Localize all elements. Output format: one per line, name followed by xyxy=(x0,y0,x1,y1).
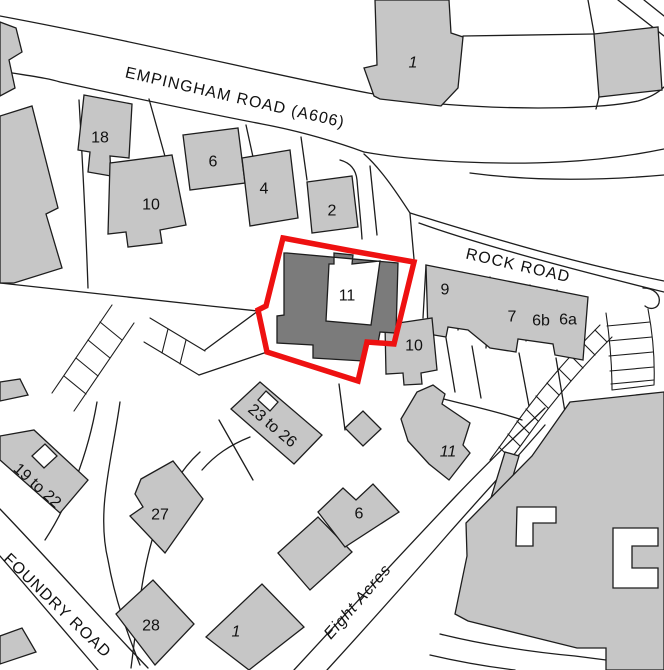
building-small-west xyxy=(0,379,28,401)
traffic-island-top xyxy=(364,149,664,163)
long-parcel-line-west xyxy=(0,283,258,311)
parcel-to-site-sw-b xyxy=(199,352,267,375)
label-building-1-north: 1 xyxy=(409,55,418,72)
parcel-18-6 xyxy=(149,99,166,160)
lane-south-of-site xyxy=(339,384,345,430)
parcel-line-top xyxy=(463,34,594,36)
building-edge-west-b xyxy=(0,106,62,283)
outbuilding-small xyxy=(345,411,381,446)
label-building-11-south: 11 xyxy=(440,444,457,461)
building-edge-west-a xyxy=(0,22,22,96)
label-building-6b: 6b xyxy=(532,313,550,330)
square-building-tie xyxy=(596,97,599,109)
building-1-north xyxy=(364,0,463,106)
label-building-6-south: 6 xyxy=(355,506,364,523)
parcel-6-4 xyxy=(246,125,253,157)
garden-strip-east-rails xyxy=(606,309,654,390)
garden-strip-center-rails xyxy=(144,318,205,375)
label-building-1-south: 1 xyxy=(232,624,241,641)
ne-corner-line-3 xyxy=(588,0,594,33)
rock-road-hook xyxy=(643,288,659,308)
label-building-28: 28 xyxy=(142,618,160,635)
building-4 xyxy=(242,150,298,226)
label-building-9: 9 xyxy=(441,282,450,299)
label-building-6a: 6a xyxy=(559,312,577,329)
building-sw-corner xyxy=(0,628,36,664)
label-building-7: 7 xyxy=(508,309,517,326)
parcel-west-of-9 xyxy=(423,265,426,318)
label-building-4: 4 xyxy=(260,181,269,198)
parcel-4-2 xyxy=(301,137,307,180)
garden-strip-west-rails xyxy=(52,305,134,411)
map-canvas: EMPINGHAM ROAD (A606) ROCK ROAD FOUNDRY … xyxy=(0,0,664,670)
building-square-ne xyxy=(594,27,662,97)
label-building-2: 2 xyxy=(328,203,337,220)
label-empingham-road: EMPINGHAM ROAD (A606) xyxy=(124,64,347,131)
parcel-line-ne-of-site xyxy=(410,214,414,259)
bottom-lane-b xyxy=(430,655,515,670)
garden-strip-east-rungs xyxy=(607,322,654,384)
label-building-27: 27 xyxy=(151,507,169,524)
label-building-18: 18 xyxy=(91,130,109,147)
site-location-map: EMPINGHAM ROAD (A606) ROCK ROAD FOUNDRY … xyxy=(0,0,664,670)
garden-strip-center-rungs xyxy=(162,329,186,364)
traffic-island-tip xyxy=(364,154,410,213)
label-building-10-rock: 10 xyxy=(405,338,423,355)
label-eight-acres: Eight Acres xyxy=(321,561,395,643)
building-11-south xyxy=(401,385,470,480)
label-subject-building-11: 11 xyxy=(339,288,356,305)
site-access-lane-east xyxy=(370,166,377,235)
label-building-6: 6 xyxy=(209,154,218,171)
label-building-10: 10 xyxy=(142,197,160,214)
building-1-south xyxy=(206,584,304,670)
lane-north-of-27 xyxy=(202,437,250,470)
ne-corner-line-2 xyxy=(644,0,664,16)
rock-road-north-verge xyxy=(470,173,664,179)
parcel-to-site-sw-a xyxy=(205,311,258,350)
